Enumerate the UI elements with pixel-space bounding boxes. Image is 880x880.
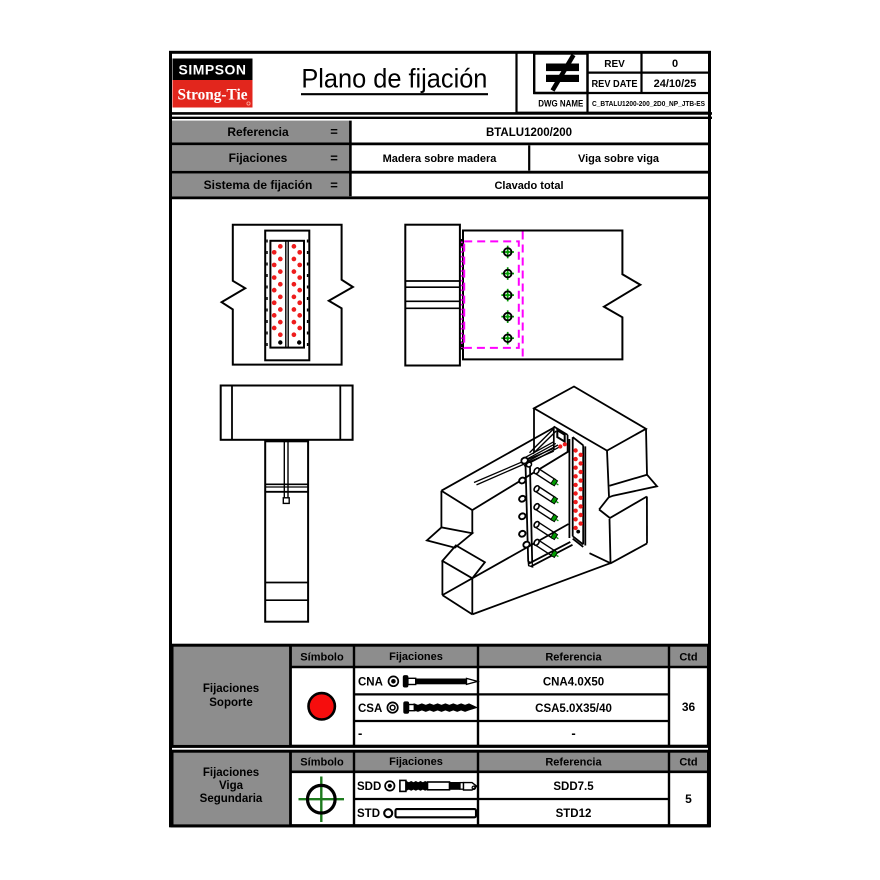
svg-text:SDD: SDD bbox=[357, 781, 381, 793]
svg-text:Fijaciones: Fijaciones bbox=[389, 651, 443, 663]
svg-text:Símbolo: Símbolo bbox=[300, 652, 344, 664]
svg-text:Viga: Viga bbox=[219, 780, 244, 792]
svg-text:36: 36 bbox=[682, 700, 696, 714]
svg-text:Fijaciones: Fijaciones bbox=[229, 151, 288, 165]
svg-text:CNA: CNA bbox=[358, 677, 383, 689]
svg-text:REV DATE: REV DATE bbox=[592, 79, 638, 90]
svg-text:STD12: STD12 bbox=[556, 808, 592, 820]
svg-text:CSA5.0X35/40: CSA5.0X35/40 bbox=[535, 703, 612, 715]
svg-text:SDD7.5: SDD7.5 bbox=[553, 781, 594, 793]
svg-text:CNA4.0X50: CNA4.0X50 bbox=[543, 677, 604, 689]
svg-text:-: - bbox=[358, 726, 362, 741]
svg-text:CSA: CSA bbox=[358, 703, 382, 715]
svg-text:Fijaciones: Fijaciones bbox=[203, 767, 259, 779]
svg-text:=: = bbox=[330, 150, 338, 165]
svg-text:C_BTALU1200-200_2D0_NP_JTB-ES: C_BTALU1200-200_2D0_NP_JTB-ES bbox=[592, 99, 705, 108]
svg-text:0: 0 bbox=[672, 58, 678, 70]
svg-text:STD: STD bbox=[357, 808, 380, 820]
svg-text:Ctd: Ctd bbox=[679, 652, 697, 664]
svg-text:Fijaciones: Fijaciones bbox=[203, 683, 259, 695]
svg-text:SIMPSON: SIMPSON bbox=[179, 63, 247, 78]
svg-text:REV: REV bbox=[604, 59, 625, 70]
svg-text:Referencia: Referencia bbox=[227, 125, 289, 139]
svg-text:Símbolo: Símbolo bbox=[300, 757, 344, 769]
svg-text:24/10/25: 24/10/25 bbox=[654, 78, 697, 90]
svg-text:Soporte: Soporte bbox=[209, 697, 252, 709]
svg-text:Referencia: Referencia bbox=[545, 652, 602, 664]
svg-text:Segundaria: Segundaria bbox=[200, 793, 263, 805]
svg-text:Clavado total: Clavado total bbox=[494, 180, 563, 192]
svg-text:BTALU1200/200: BTALU1200/200 bbox=[486, 127, 572, 139]
svg-text:Fijaciones: Fijaciones bbox=[389, 756, 443, 768]
svg-text:=: = bbox=[330, 124, 338, 139]
svg-text:DWG NAME: DWG NAME bbox=[538, 99, 583, 110]
svg-text:Madera sobre madera: Madera sobre madera bbox=[383, 153, 498, 165]
svg-text:5: 5 bbox=[685, 792, 692, 806]
svg-text:Ctd: Ctd bbox=[679, 757, 697, 769]
svg-text:-: - bbox=[571, 726, 575, 741]
svg-text:Strong-Tie: Strong-Tie bbox=[178, 87, 248, 104]
svg-text:Plano de fijación: Plano de fijación bbox=[301, 64, 487, 94]
svg-text:Sistema de fijación: Sistema de fijación bbox=[204, 178, 313, 192]
svg-text:Referencia: Referencia bbox=[545, 757, 602, 769]
svg-text:Viga sobre viga: Viga sobre viga bbox=[578, 153, 660, 165]
svg-text:=: = bbox=[330, 178, 338, 193]
